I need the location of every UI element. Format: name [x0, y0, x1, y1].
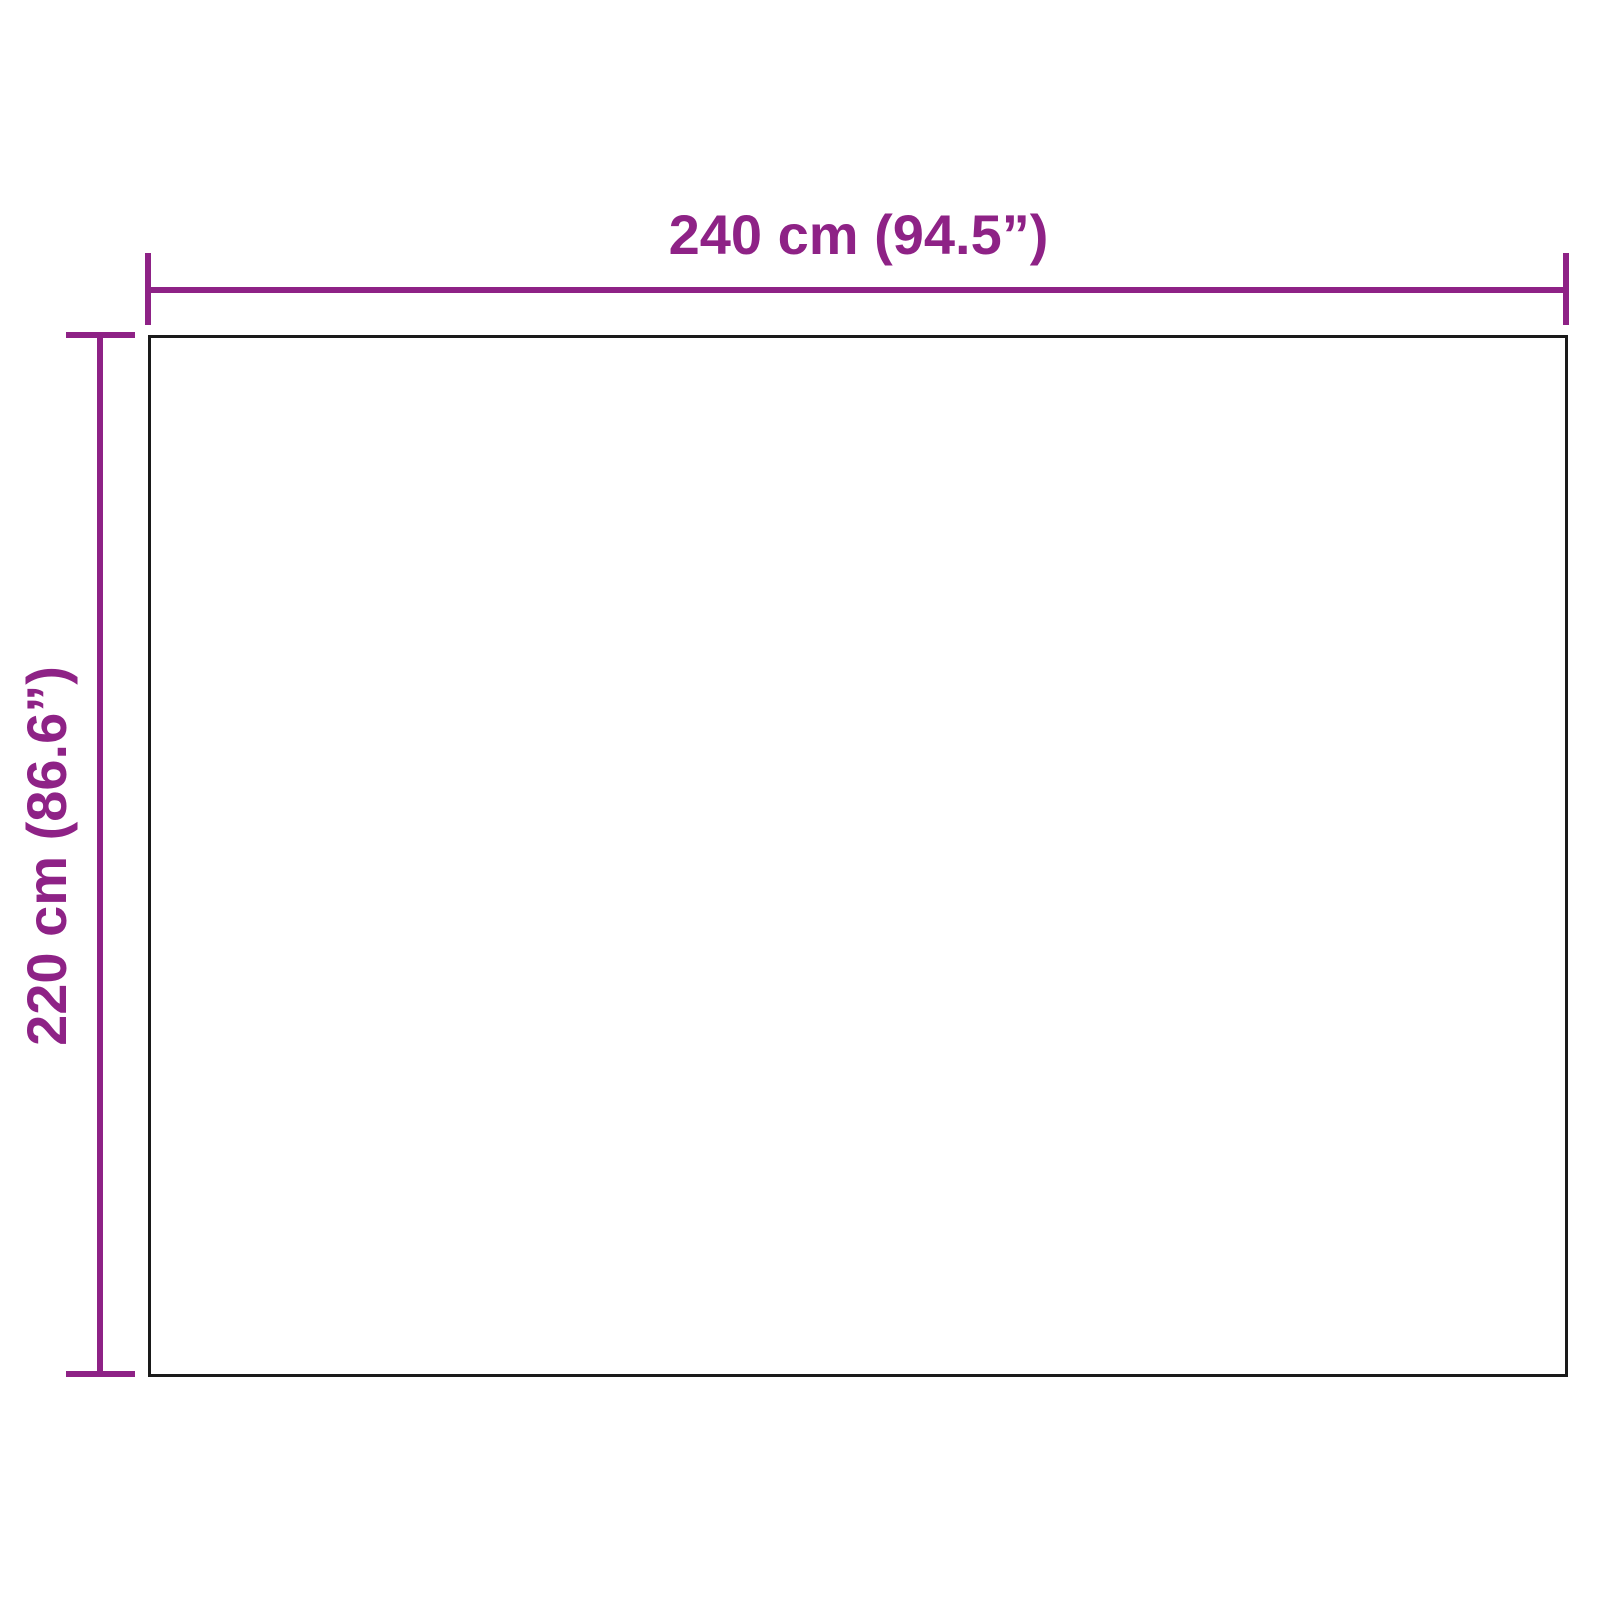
width-dimension-label: 240 cm (94.5”)	[148, 203, 1569, 267]
product-outline-rectangle	[148, 335, 1568, 1377]
dimension-diagram: 240 cm (94.5”) 220 cm (86.6”)	[0, 0, 1600, 1600]
height-dimension-line	[97, 335, 103, 1377]
height-dimension-tick-top	[66, 332, 135, 338]
height-dimension-tick-bottom	[66, 1371, 135, 1377]
width-dimension-line	[148, 287, 1569, 293]
height-dimension-label: 220 cm (86.6”)	[15, 666, 79, 1046]
